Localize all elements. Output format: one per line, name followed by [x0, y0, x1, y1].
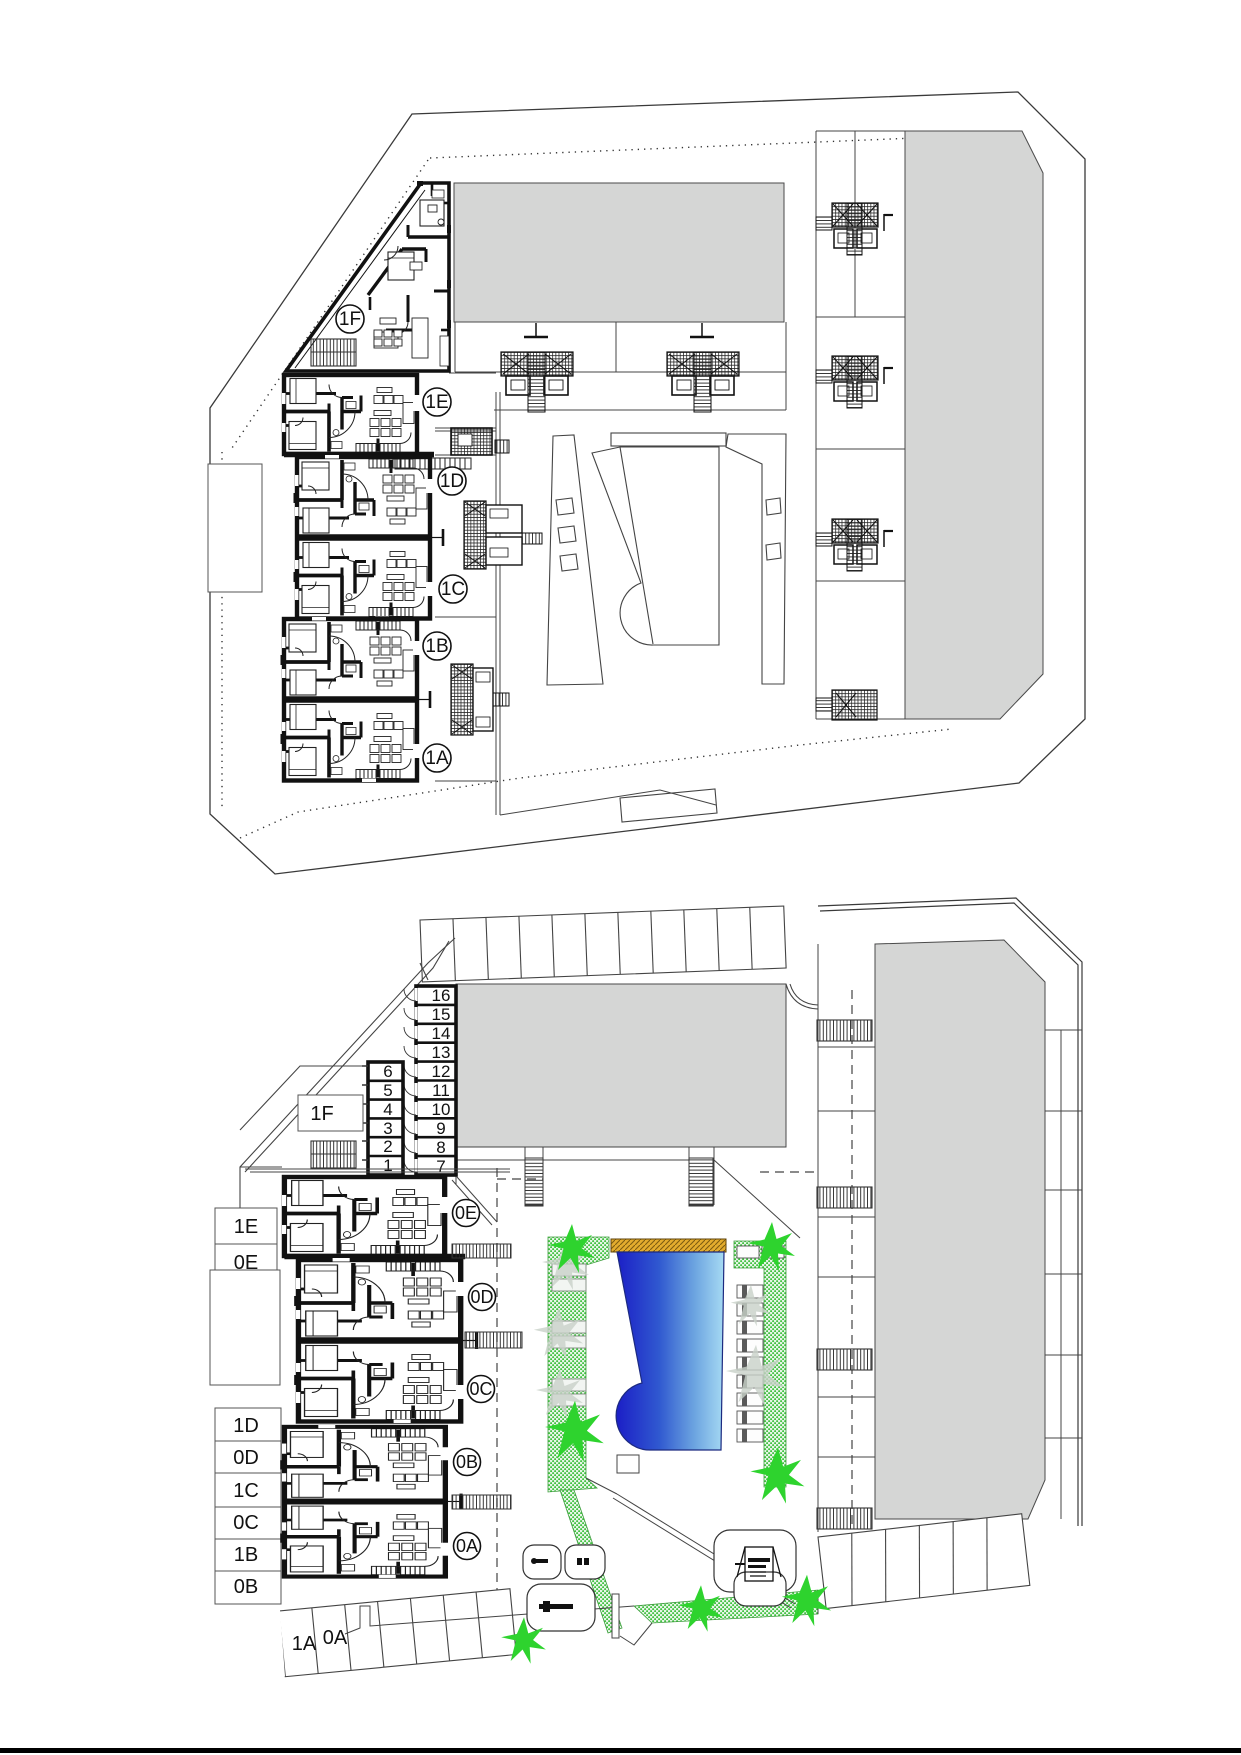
svg-text:7: 7 [436, 1157, 445, 1176]
svg-text:0C: 0C [469, 1379, 492, 1399]
svg-text:4: 4 [383, 1100, 392, 1119]
svg-text:14: 14 [432, 1024, 451, 1043]
svg-text:0D: 0D [233, 1447, 259, 1469]
svg-text:1A: 1A [425, 748, 449, 769]
svg-text:0C: 0C [233, 1512, 259, 1534]
svg-text:1E: 1E [234, 1216, 258, 1238]
svg-text:1F: 1F [339, 309, 361, 330]
svg-text:1A: 1A [292, 1633, 317, 1655]
svg-text:0E: 0E [455, 1203, 477, 1223]
svg-text:0A: 0A [323, 1627, 348, 1649]
svg-text:6: 6 [383, 1062, 392, 1081]
svg-text:0B: 0B [234, 1576, 258, 1598]
svg-text:0B: 0B [456, 1452, 478, 1472]
svg-text:1B: 1B [234, 1544, 258, 1566]
svg-text:1B: 1B [425, 636, 448, 657]
svg-text:1F: 1F [310, 1103, 333, 1125]
svg-text:0A: 0A [456, 1536, 478, 1556]
svg-text:5: 5 [383, 1081, 392, 1100]
svg-text:3: 3 [383, 1119, 392, 1138]
svg-text:13: 13 [432, 1043, 451, 1062]
svg-text:0E: 0E [234, 1252, 258, 1274]
svg-text:9: 9 [436, 1119, 445, 1138]
svg-text:1D: 1D [233, 1415, 259, 1437]
svg-text:10: 10 [432, 1100, 451, 1119]
svg-text:11: 11 [432, 1081, 450, 1100]
svg-text:8: 8 [436, 1138, 445, 1157]
svg-text:2: 2 [383, 1137, 392, 1156]
svg-text:15: 15 [432, 1005, 451, 1024]
svg-text:1D: 1D [440, 471, 464, 492]
svg-text:16: 16 [432, 986, 451, 1005]
svg-text:1C: 1C [441, 579, 465, 600]
svg-text:12: 12 [432, 1062, 451, 1081]
svg-text:1E: 1E [425, 392, 448, 413]
svg-text:1C: 1C [233, 1480, 259, 1502]
svg-text:0D: 0D [470, 1287, 493, 1307]
